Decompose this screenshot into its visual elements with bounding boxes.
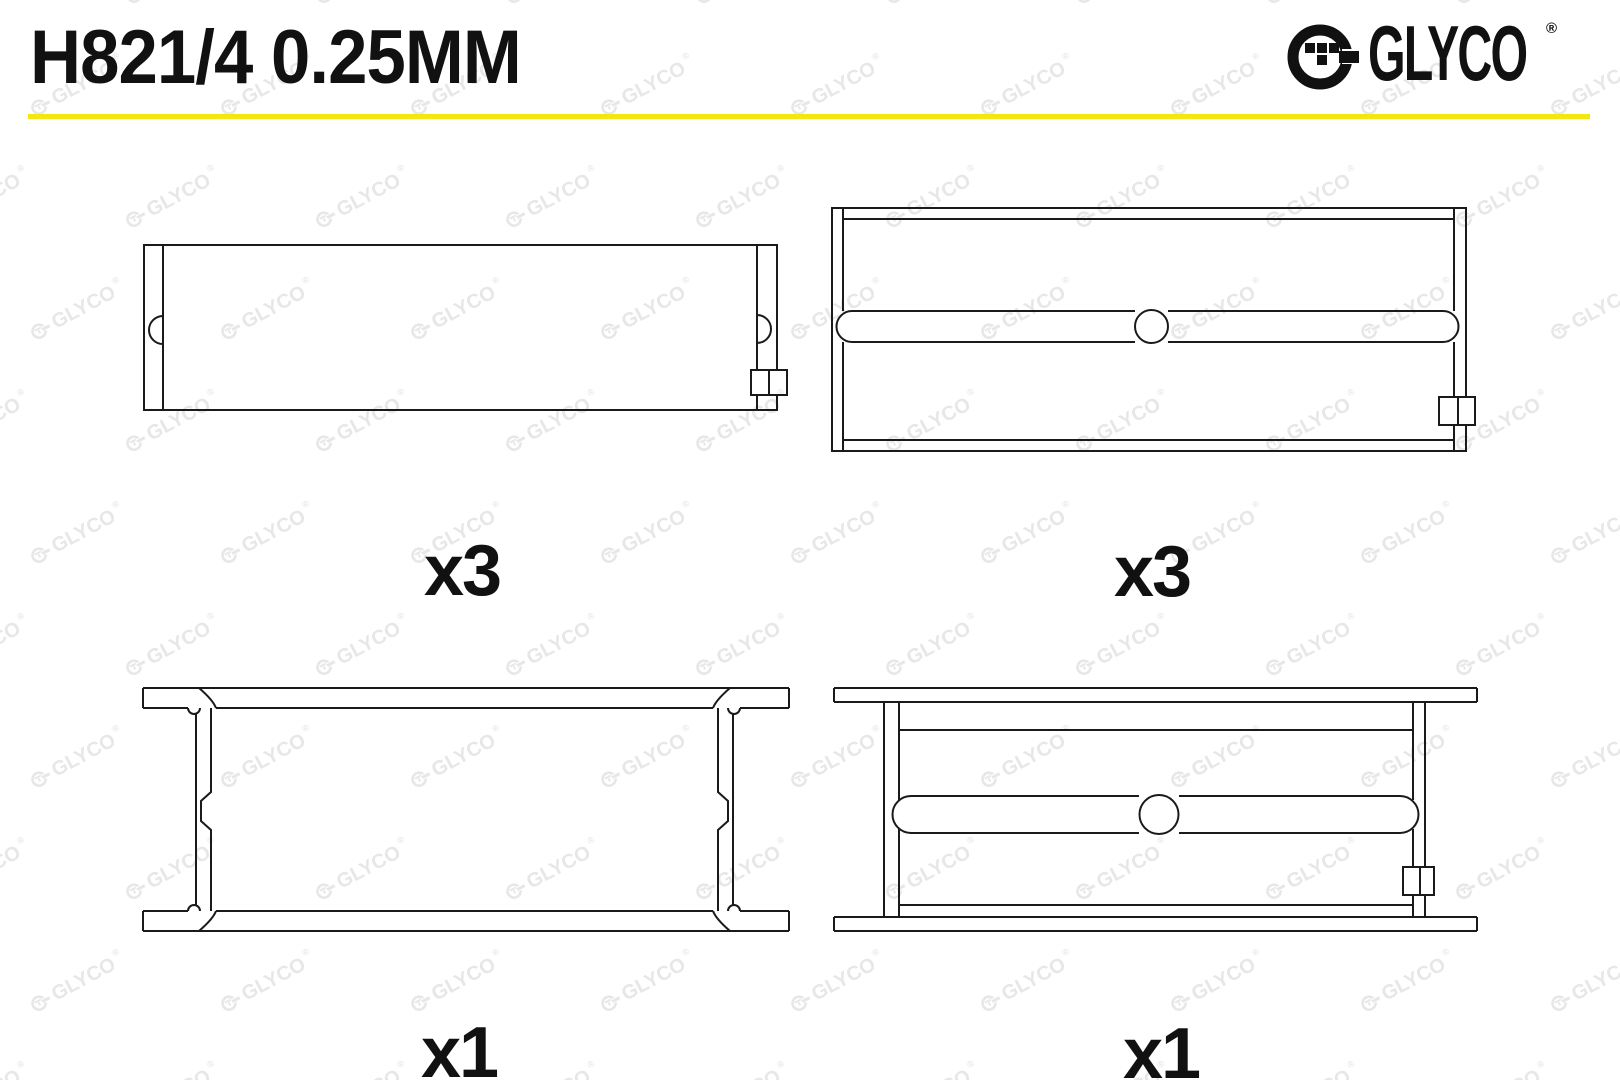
part-number: H821/4 0.25MM [30,20,521,96]
shell-outline [144,245,777,410]
flange-fillets [199,688,730,931]
quantity-label-upper-shell-plain: x3 [352,535,572,607]
figure-flanged-shell-oil-groove [834,688,1477,931]
quantity-label-flanged-shell-plain: x1 [349,1017,569,1080]
figure-flanged-shell-plain [143,688,789,931]
brand-name: GLYCO [1368,16,1526,90]
bottom-flange [834,917,1477,931]
oil-hole [1140,795,1179,834]
right-wall [718,708,733,911]
figure-upper-shell-plain [144,245,787,410]
left-wall [884,702,899,917]
registered-mark: ® [1546,20,1557,37]
brand-name-wrap: GLYCO [1368,16,1546,92]
quantity-label-upper-shell-oil-groove: x3 [1042,536,1262,608]
technical-drawings [0,0,1620,1080]
flange-hooks [188,708,740,911]
accent-line [28,114,1590,119]
bottom-flange [143,911,789,931]
top-flange [834,688,1477,702]
oil-groove [893,796,1419,833]
oil-groove [836,311,1458,342]
locating-lug [1403,867,1434,895]
right-relief-notch [757,315,771,343]
glyco-logo-icon [1283,18,1359,94]
catalog-page: GLYCO® GLYCO® GLYCO® GLYCO® GLYCO® GLYCO… [0,0,1620,1080]
quantity-label-flanged-shell-oil-groove: x1 [1051,1018,1271,1080]
brand-logo: GLYCO ® [1283,16,1557,94]
shell-outline [832,208,1466,451]
oil-hole [1135,310,1168,343]
figure-upper-shell-oil-groove [832,208,1475,451]
top-flange [143,688,789,708]
left-relief-notch [149,316,163,344]
left-wall [196,708,211,911]
